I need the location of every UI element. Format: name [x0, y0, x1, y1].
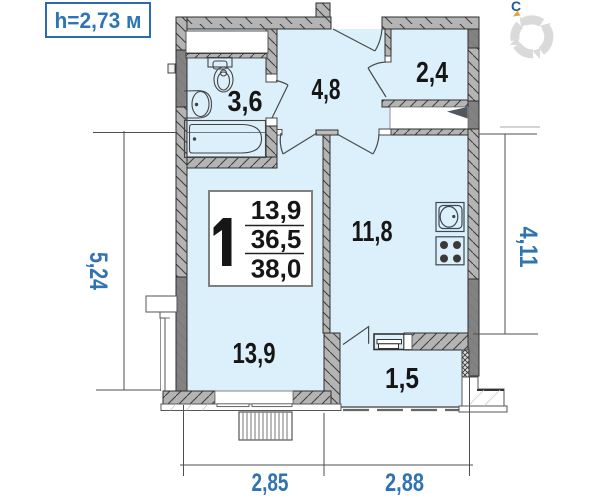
svg-text:13,9: 13,9 [233, 338, 276, 370]
svg-text:2,85: 2,85 [252, 469, 289, 497]
svg-text:С: С [511, 0, 521, 14]
svg-text:3,6: 3,6 [228, 86, 263, 118]
svg-text:1,5: 1,5 [385, 363, 419, 395]
svg-text:2,4: 2,4 [416, 57, 448, 89]
svg-text:2,88: 2,88 [385, 469, 424, 497]
svg-text:36,5: 36,5 [251, 224, 302, 254]
svg-text:11,8: 11,8 [352, 216, 393, 248]
svg-text:h=2,73 м: h=2,73 м [55, 8, 142, 33]
svg-text:4,11: 4,11 [514, 227, 542, 268]
svg-text:13,9: 13,9 [251, 195, 302, 225]
svg-text:5,24: 5,24 [84, 252, 112, 290]
svg-text:38,0: 38,0 [251, 254, 302, 284]
svg-text:4,8: 4,8 [312, 74, 341, 106]
